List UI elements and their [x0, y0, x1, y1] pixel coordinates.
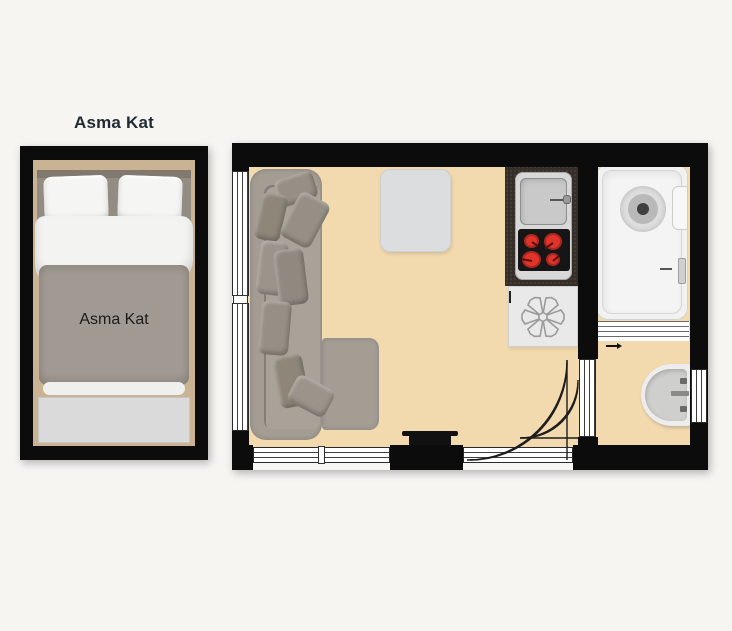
bathtub-shelf: [672, 186, 688, 230]
direction-arrow-icon: [606, 345, 618, 347]
shower-step: [597, 321, 689, 341]
bathtub-drain: [620, 186, 666, 232]
window-bottom-1: [253, 447, 319, 463]
bed-sheet: [43, 382, 185, 395]
fan-unit-mark: [509, 291, 511, 303]
basin-faucet: [671, 391, 689, 396]
wall-bottom-middle: [390, 445, 463, 470]
fan-unit: [508, 286, 578, 347]
bathtub: [596, 164, 688, 320]
fan-icon: [508, 286, 578, 347]
entry-door-sill: [463, 447, 573, 463]
cooktop: [518, 229, 570, 271]
sofa-pillow: [258, 300, 293, 356]
basin-tap: [680, 378, 687, 384]
burner-icon: [544, 233, 562, 250]
window-left-lower: [232, 303, 249, 431]
partition-wall-upper: [578, 167, 598, 359]
sofa-chaise: [322, 338, 379, 430]
sink-faucet-knob: [564, 196, 570, 203]
bathtub-faucet: [678, 258, 686, 284]
burner-icon: [522, 251, 541, 268]
bathroom-doorway: [579, 359, 596, 437]
basin-tap: [680, 406, 687, 412]
mezzanine-room: Asma Kat: [20, 146, 208, 460]
burner-icon: [546, 253, 560, 266]
window-mullion: [233, 295, 248, 304]
floor-plan-canvas: Asma Kat Asma Kat: [0, 0, 732, 631]
main-floor-plan: [232, 143, 708, 470]
bed-blanket-label: Asma Kat: [39, 265, 189, 385]
window-right: [691, 369, 707, 423]
coffee-table: [380, 169, 451, 252]
window-bottom-2: [324, 447, 390, 463]
wall-left-upper: [232, 143, 249, 171]
partition-wall-lower: [578, 437, 598, 470]
wall-bottom-left: [232, 445, 253, 470]
wall-top: [232, 143, 708, 167]
bathtub-faucet-spout: [660, 268, 672, 270]
kitchen-sink: [520, 178, 567, 225]
bed-end-bench: [38, 397, 190, 443]
mezzanine-title: Asma Kat: [20, 113, 208, 139]
window-left-upper: [232, 171, 249, 296]
burner-icon: [524, 234, 539, 248]
